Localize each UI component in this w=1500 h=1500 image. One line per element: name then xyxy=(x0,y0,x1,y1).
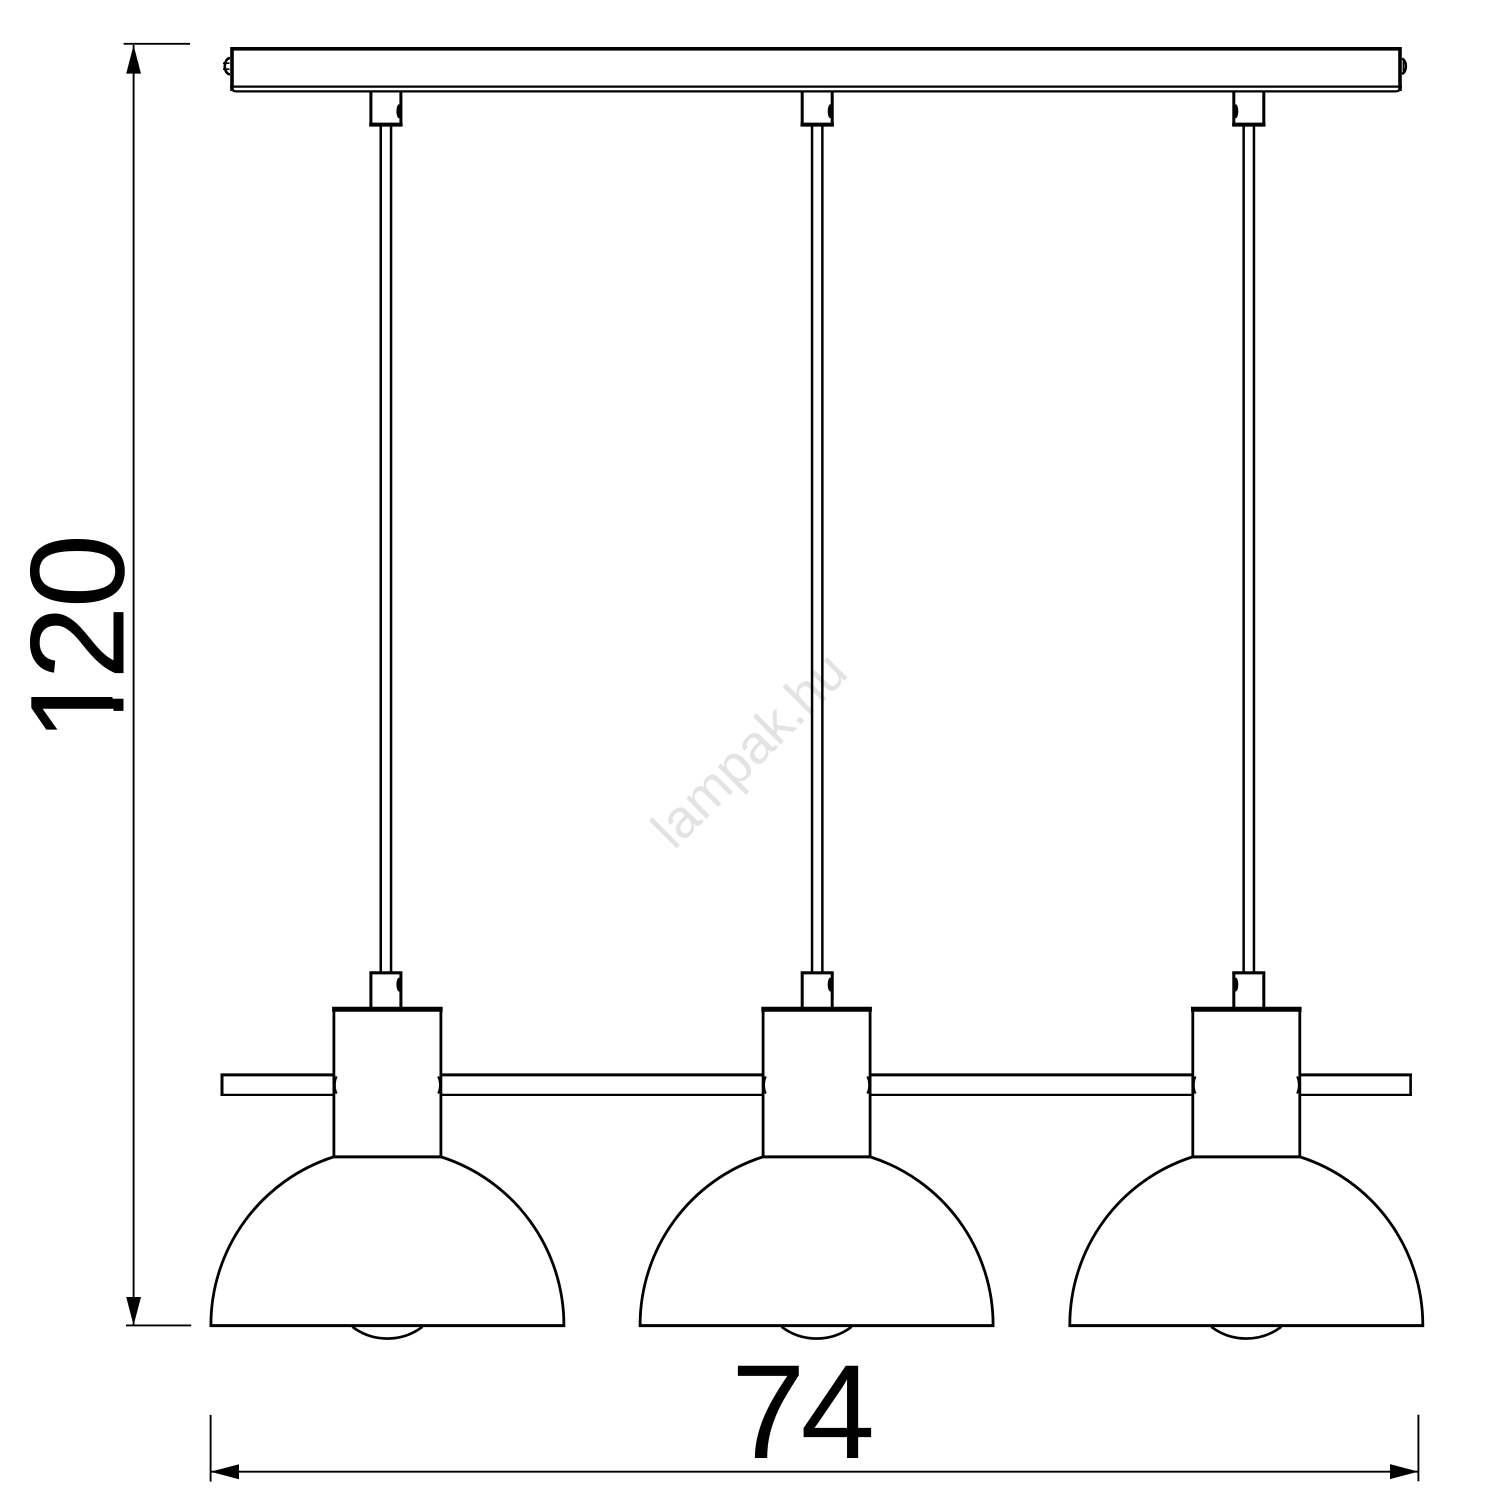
svg-text:lampak.hu: lampak.hu xyxy=(640,641,859,860)
svg-text:74: 74 xyxy=(731,1338,872,1487)
